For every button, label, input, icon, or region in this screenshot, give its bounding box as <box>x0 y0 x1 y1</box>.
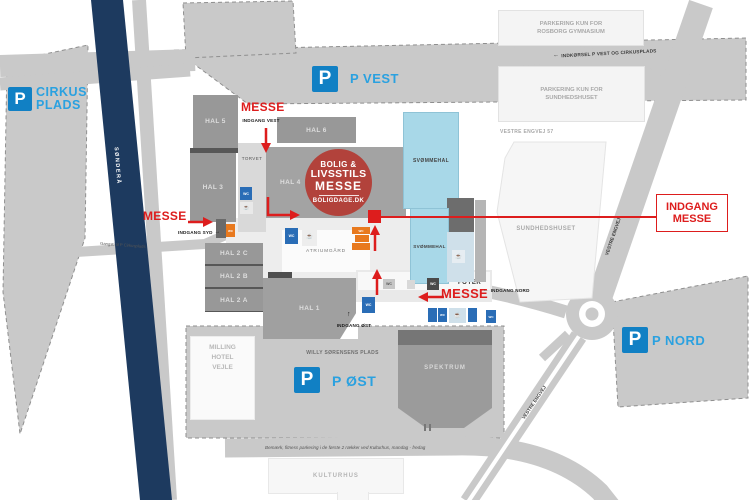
indgang-syd-text: INDGANG SYD <box>178 230 213 235</box>
foodstall-icon <box>355 235 369 242</box>
hal6-label: HAL 6 <box>306 127 327 134</box>
indgang-oest-text: INDGANG ØST <box>337 323 372 328</box>
toilet-icon: WC <box>285 228 298 244</box>
parking-icon-cirkus: P <box>8 87 32 111</box>
hal4-label: HAL 4 <box>280 179 301 186</box>
vestre-engvej-57-label: VESTRE ENGVEJ 57 <box>500 129 553 135</box>
cafe-icon: ☕ <box>452 250 465 263</box>
toilet-icon <box>428 308 437 322</box>
indgang-nord-text: INDGANG NORD <box>491 288 530 293</box>
willy-plads-label: WILLY SØRENSENS PLADS <box>295 350 390 356</box>
parking-rosborg-line2: ROSBORG GYMNASIUM <box>537 28 605 37</box>
pvest-label: P VEST <box>350 71 399 86</box>
building-milling-hotel: MILLING HOTEL VEJLE <box>190 336 255 420</box>
spektrum-label: SPEKTRUM <box>424 365 466 371</box>
indgang-syd-label: INDGANG SYD → <box>178 229 220 235</box>
toilet-icon: WC <box>438 308 447 322</box>
arrow-right-icon: → <box>215 229 221 235</box>
hal2b-label: HAL 2 B <box>220 273 248 280</box>
arrow-left-icon: ← <box>553 52 560 58</box>
parking-rosborg-building: PARKERING KUN FOR ROSBORG GYMNASIUM <box>498 10 644 46</box>
building-svommehal-upper: SVØMMEHAL <box>403 112 459 209</box>
logo-line3: MESSE <box>315 180 362 193</box>
indgang-oest-arrow: ↑ <box>347 311 351 318</box>
indgang-messe-line2: MESSE <box>673 213 712 225</box>
hal2c-label: HAL 2 C <box>220 250 248 257</box>
hotel-line1: MILLING <box>209 343 236 353</box>
kiosk-icon <box>407 280 415 289</box>
pool-strip <box>475 200 486 282</box>
bollard-icon <box>424 424 426 431</box>
arrow-left-icon: ← <box>483 287 489 293</box>
building-spektrum-top <box>398 330 492 345</box>
foodstall-icon: WC <box>352 227 370 234</box>
hotel-line2: HOTEL <box>209 353 236 363</box>
arrow-up-icon: ↑ <box>347 311 351 318</box>
pnord-label: P NORD <box>652 333 705 348</box>
indgang-oest-label: INDGANG ØST <box>334 323 374 328</box>
building-kulturhus-stem <box>337 492 369 500</box>
toilet-icon: WC <box>486 310 496 323</box>
parking-note: Bemærk, fitness parkering i de første 2 … <box>265 445 425 450</box>
parking-icon-poest: P <box>294 367 320 393</box>
parking-icon-pvest: P <box>312 66 338 92</box>
hal5-label: HAL 5 <box>205 118 226 125</box>
messe-label-vest: MESSE <box>241 100 285 114</box>
toilet-icon: WC <box>427 278 439 290</box>
torvet-label: TORVET <box>242 156 263 161</box>
building-spektrum: SPEKTRUM <box>398 345 492 391</box>
toilet-icon <box>468 308 477 322</box>
parking-rosborg-line1: PARKERING KUN FOR <box>537 20 605 29</box>
building-hal3: HAL 3 <box>190 153 236 222</box>
logo-divider <box>319 195 359 196</box>
parking-sundhedshuset-building: PARKERING KUN FOR SUNDHEDSHUSET <box>498 66 645 122</box>
parking-sundhed-line1: PARKERING KUN FOR <box>540 86 602 95</box>
kiosk-icon: WC <box>383 279 395 289</box>
messe-label-syd: MESSE <box>143 209 187 223</box>
pool-service-dark <box>447 198 474 232</box>
svommehal-lower-label: SVØMMEHAL <box>413 244 446 249</box>
building-hal1: HAL 1 <box>263 278 356 339</box>
bollard-icon <box>429 424 431 431</box>
hotel-line3: VEJLE <box>209 363 236 373</box>
building-hal6: HAL 6 <box>277 117 356 143</box>
cirkusplads-label: CIRKUS PLADS <box>36 86 87 112</box>
logo-line4: BOLIGDAGE.DK <box>313 198 364 204</box>
indgang-vest-text: INDGANG VEST <box>242 118 279 123</box>
building-sundhedshuset <box>497 142 606 302</box>
building-hal2c: HAL 2 C <box>205 243 263 264</box>
poest-label: P ØST <box>332 373 376 389</box>
building-hal2b: HAL 2 B <box>205 266 263 287</box>
indgang-messe-line1: INDGANG <box>666 201 718 213</box>
cirkus-line2: PLADS <box>36 99 87 112</box>
cafe-icon: ☕ <box>240 202 253 214</box>
kulturhus-label: KULTURHUS <box>313 473 359 479</box>
indgang-messe-callout: INDGANG MESSE <box>656 194 728 232</box>
building-kulturhus: KULTURHUS <box>268 458 404 494</box>
hal3-label: HAL 3 <box>203 184 224 191</box>
foodstall-icon <box>352 243 370 250</box>
hal2a-label: HAL 2 A <box>220 297 248 304</box>
indgang-vest-label: INDGANG VEST <box>241 118 281 123</box>
svommehal-upper-label: SVØMMEHAL <box>413 158 449 164</box>
atrium-label: ATRIUMGÅRD <box>306 249 346 254</box>
sundhedshuset-label: SUNDHEDSHUSET <box>506 226 586 232</box>
toilet-icon: WC <box>240 187 252 200</box>
parking-icon-pnord: P <box>622 327 648 353</box>
parking-sundhed-line2: SUNDHEDSHUSET <box>540 94 602 103</box>
building-svommehal-lower: SVØMMEHAL <box>410 208 449 284</box>
venue-map: PARKERING KUN FOR ROSBORG GYMNASIUM PARK… <box>0 0 750 500</box>
toilet-icon: WC <box>362 297 375 313</box>
building-hal5: HAL 5 <box>193 95 238 148</box>
cafe-icon: ☕ <box>449 308 466 323</box>
hal1-label: HAL 1 <box>299 305 320 312</box>
building-hal2a: HAL 2 A <box>205 289 263 311</box>
parking-area-top <box>183 1 296 58</box>
indgang-nord-label: ← INDGANG NORD <box>483 287 530 293</box>
roundabout-center <box>586 308 599 321</box>
messe-logo: BOLIG & LIVSSTILS MESSE BOLIGDAGE.DK <box>305 149 372 216</box>
foodstall-icon: WC <box>226 224 235 237</box>
cafe-icon: ☕ <box>302 228 317 246</box>
messe-label-nord: MESSE <box>441 286 488 301</box>
